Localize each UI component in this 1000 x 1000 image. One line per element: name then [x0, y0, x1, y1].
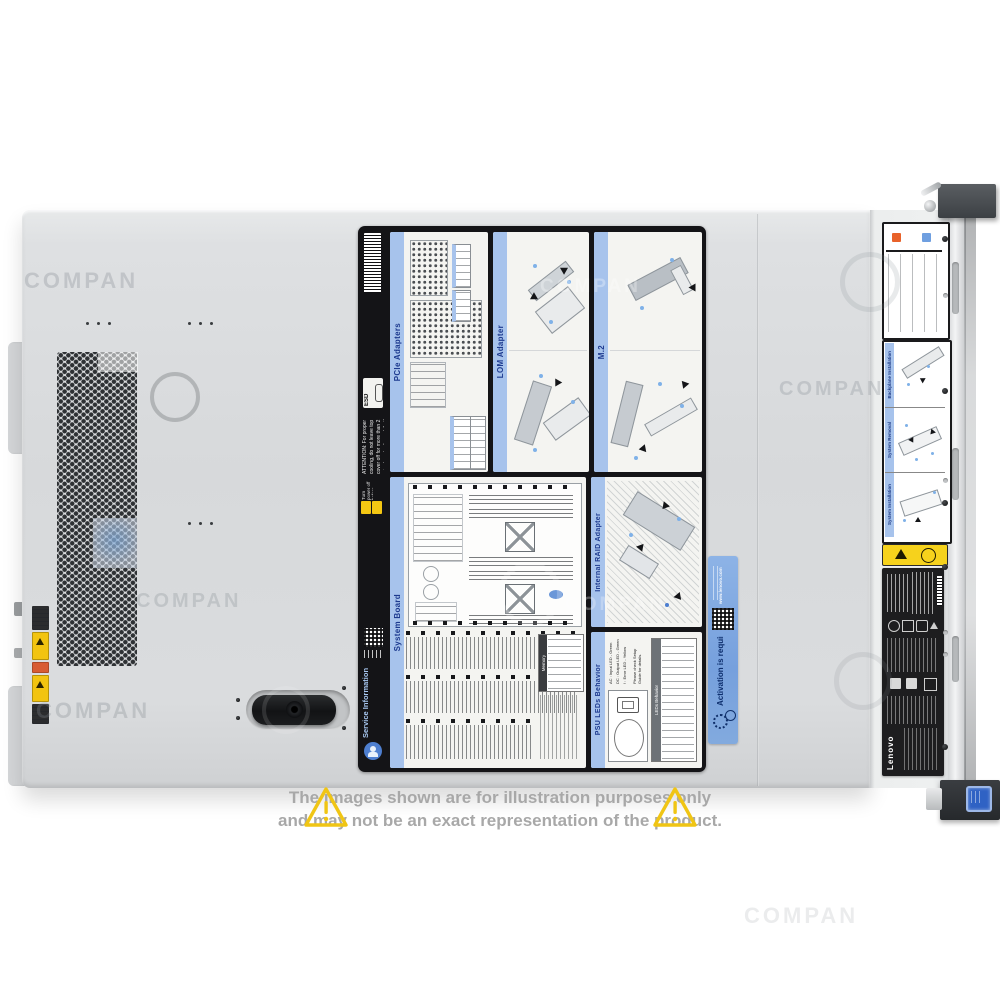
rivet-dots: [188, 512, 221, 530]
panel-psu-header: PSU LEDs Behavior: [591, 632, 605, 768]
left-edge-orange-label: [32, 662, 49, 673]
activation-sticker: www.lenovo.com Activation is required: [708, 556, 738, 744]
disclaimer-line2: and may not be an exact representation o…: [0, 809, 1000, 832]
watermark-text: COMPAN: [744, 903, 858, 929]
psu-table-title: LEDs Behavior: [654, 685, 659, 715]
watermark-logo-ring: [498, 562, 562, 626]
cert-icon: [888, 620, 900, 632]
screw: [942, 744, 948, 750]
screw-hole: [943, 630, 948, 635]
regulatory-label: Lenovo: [882, 568, 944, 776]
screw: [942, 236, 948, 242]
psu-leds-table: LEDs Behavior: [651, 638, 697, 762]
watermark-text: COMPAN: [779, 378, 884, 401]
latch-screw: [236, 716, 240, 720]
section-title: System Removal: [887, 422, 892, 458]
rack-latch-top: [938, 184, 996, 218]
rear-chassis-drawing: [410, 240, 448, 296]
screw-hole: [943, 652, 948, 657]
clock-icon: [725, 710, 736, 721]
caution-triangle-icon: [895, 549, 907, 559]
rail-slot: [952, 448, 959, 500]
panel-psu-title: PSU LEDs Behavior: [595, 664, 602, 735]
service-info-icon: [364, 742, 382, 760]
section-system-removal: System Removal: [885, 408, 945, 473]
lift-weight-icon: [921, 548, 936, 563]
watermark-text: COMPAN: [136, 590, 241, 613]
screw-hole: [943, 478, 948, 483]
person-icon: [368, 752, 378, 757]
disclaimer: The images shown are for illustration pu…: [0, 786, 1000, 836]
panel-m2: M.2: [594, 232, 702, 472]
m2-illustration-2: [610, 352, 700, 468]
section-title: System Installation: [887, 484, 892, 525]
riser-table: [470, 416, 486, 470]
riser-slots-drawing: [410, 362, 446, 408]
panel-pcie-header: PCIe Adapters: [390, 232, 404, 472]
section-system-installation: System Installation: [885, 473, 945, 537]
server-top-view: ESD ATTENTION: For proper cooling, do no…: [0, 0, 1000, 1000]
psu-note: Please check Setup Guide for details.: [632, 638, 642, 684]
watermark-text: COMPAN: [36, 698, 150, 724]
watermark-logo-ring: [262, 686, 310, 734]
panel-psu-leds: PSU LEDs Behavior AC : Input LED - Green…: [591, 632, 702, 768]
service-info-title: Service Information: [361, 662, 383, 738]
panel-system-board: System Board: [390, 477, 586, 768]
memory-table-title: Memory: [541, 655, 546, 671]
lom-illustration-2: [509, 352, 587, 468]
rail-slot: [952, 636, 959, 682]
lenovo-logo: Lenovo: [886, 728, 895, 770]
screw-hole: [943, 293, 948, 298]
disclaimer-warning-icon-left: [303, 784, 349, 830]
warning-icon: [361, 501, 371, 514]
cert-icon: [924, 678, 937, 691]
watermark-logo-ring: [840, 252, 900, 312]
left-edge-barcode-label: [32, 606, 49, 630]
rivet-dots: [86, 312, 119, 330]
vent-fan-blue-patch: [93, 518, 137, 568]
left-edge-warning-label: [32, 632, 49, 660]
panel-system-board-title: System Board: [393, 594, 402, 651]
panel-lom-title: LOM Adapter: [496, 325, 505, 378]
psu-drawing: [608, 690, 648, 762]
rear-chassis-drawing: [410, 300, 482, 358]
panel-lom-header: LOM Adapter: [493, 232, 507, 472]
front-bezel-shadow: [964, 200, 976, 792]
esd-label: ESD: [363, 378, 383, 408]
recycle-triangle-icon: [930, 622, 938, 629]
power-off-text: Turn power off before removing any non-h…: [361, 478, 373, 500]
warning-square-icon: [906, 678, 917, 689]
watermark-text: COMPAN: [24, 268, 138, 294]
activation-qr-code: [712, 608, 734, 630]
cpu1: [505, 522, 535, 552]
screw: [942, 564, 948, 570]
warning-triangle-icon: [36, 681, 44, 688]
support-qr-code: [364, 628, 383, 647]
watermark-logo-ring: [150, 372, 200, 422]
riser-table: [450, 416, 471, 470]
rack-latch-thumbscrew: [924, 200, 936, 212]
watermark-text: COMPAN: [540, 276, 641, 298]
cover-seam: [757, 214, 759, 786]
activation-title: Activation is required: [716, 636, 725, 706]
blue-led-swatch: [922, 233, 931, 242]
rail-slot: [952, 262, 959, 314]
warning-triangle-icon: [36, 638, 44, 645]
esd-text: ESD: [364, 380, 370, 406]
power-off-mini-label: Turn power off before removing any non-h…: [361, 478, 384, 516]
orange-led-swatch: [892, 233, 901, 242]
panel-lom-adapter: LOM Adapter: [493, 232, 589, 472]
riser-table: [452, 290, 471, 322]
panel-pcie-adapters: PCIe Adapters: [390, 232, 488, 472]
section-backplane-installation: Backplane Installation: [885, 343, 945, 408]
panel-m2-header: M.2: [594, 232, 608, 472]
watermark-logo-ring: [834, 652, 892, 710]
front-caution-label: [882, 544, 948, 566]
memory-table: Memory: [538, 634, 584, 692]
rivet-dots: [188, 312, 221, 330]
watermark-text: COMPAN: [565, 594, 666, 616]
screw: [942, 388, 948, 394]
panel-pcie-title: PCIe Adapters: [393, 323, 402, 381]
section-title: Backplane Installation: [887, 351, 892, 399]
psu-legend-text: AC : Input LED - Green DC : Output LED -…: [608, 638, 646, 686]
latch-screw: [342, 726, 346, 730]
warning-icon: [372, 501, 382, 514]
disclaimer-line1: The images shown are for illustration pu…: [0, 786, 1000, 809]
panel-raid-title: Internal RAID Adapter: [595, 513, 602, 592]
esd-strap-icon: [375, 384, 383, 402]
latch-screw: [236, 698, 240, 702]
panel-system-board-header: System Board: [390, 477, 404, 768]
activation-url: www.lenovo.com: [718, 562, 723, 604]
label-barcode: [364, 233, 381, 293]
vent-perforation: [57, 352, 137, 666]
cert-icon: [916, 620, 928, 632]
product-photo-page: ESD ATTENTION: For proper cooling, do no…: [0, 0, 1000, 1000]
attention-note: ATTENTION: For proper cooling, do not le…: [362, 410, 384, 474]
latch-screw: [342, 686, 346, 690]
cert-icon: [902, 620, 914, 632]
support-micro-text: [364, 650, 383, 658]
disclaimer-warning-icon-right: [652, 784, 698, 830]
system-board-note: [540, 695, 580, 759]
vent-highlight-patch: [98, 352, 138, 372]
panel-m2-title: M.2: [597, 345, 606, 359]
screw: [942, 500, 948, 506]
front-install-label: Backplane Installation System Removal Sy…: [882, 340, 952, 544]
riser-table: [452, 244, 471, 288]
